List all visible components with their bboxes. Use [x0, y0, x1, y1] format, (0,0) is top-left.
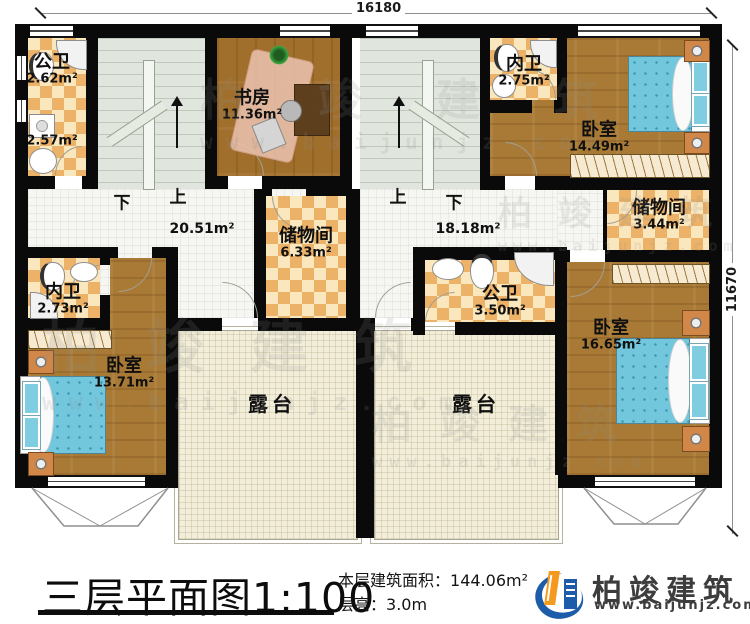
nightstand — [684, 132, 710, 154]
room-area: 2.75m² — [498, 75, 549, 90]
room-area: 3.50m² — [474, 305, 525, 320]
wardrobe — [28, 330, 112, 349]
wall — [82, 176, 98, 189]
wall — [205, 24, 217, 189]
wall — [306, 189, 346, 196]
room-label: 卧室 14.49m² — [569, 121, 629, 156]
nightstand — [28, 452, 54, 476]
pillow — [692, 61, 709, 93]
room-area: 2.57m² — [26, 135, 77, 150]
wall — [455, 322, 567, 335]
pillow — [690, 382, 708, 419]
pillow — [692, 94, 709, 126]
window — [578, 24, 700, 38]
wall — [15, 247, 118, 258]
room-area: 16.65m² — [581, 339, 641, 354]
stair-label-up: 上 — [390, 188, 407, 207]
wall — [557, 24, 567, 100]
wall — [480, 100, 532, 113]
room-label: 20.51m² — [169, 222, 234, 238]
wall — [15, 176, 55, 189]
window — [280, 24, 330, 38]
terrace-left-floor — [178, 330, 358, 540]
pillow — [23, 416, 40, 449]
floor-height-label: 层高： — [338, 595, 386, 614]
wall — [86, 24, 98, 189]
company-logo-icon — [528, 563, 586, 619]
room-name: 公卫 — [474, 285, 525, 305]
room-name: 卧室 — [581, 319, 641, 339]
wall — [356, 330, 374, 538]
stair-arrow-head — [171, 90, 183, 106]
floor-height-line: 层高：3.0m — [338, 591, 427, 615]
wall — [254, 189, 266, 318]
wall — [480, 176, 505, 190]
nightstand — [682, 310, 710, 336]
stair-label-down: 下 — [114, 194, 131, 213]
room-area: 2.73m² — [37, 303, 88, 318]
floor-plan-page: 16180 11670 — [0, 0, 750, 624]
nightstand — [682, 426, 710, 452]
sink-fixture — [70, 262, 98, 282]
wall — [262, 176, 346, 189]
room-name: 卧室 — [569, 121, 629, 141]
stair-label-down: 下 — [446, 194, 463, 213]
room-label: 露台 — [452, 393, 500, 415]
room-area: 2.62m² — [26, 73, 77, 88]
room-name: 卧室 — [94, 357, 154, 377]
room-name: 储物间 — [632, 199, 686, 219]
pillow — [23, 382, 40, 415]
room-label: 公卫 2.62m² — [26, 53, 77, 88]
room-label: 内卫 2.75m² — [498, 55, 549, 90]
wall — [340, 24, 352, 190]
room-area: 11.36m² — [222, 109, 282, 124]
room-area: 14.49m² — [569, 141, 629, 156]
stair-arrow-head — [393, 90, 405, 106]
nightstand — [684, 40, 710, 62]
wardrobe — [570, 154, 710, 178]
wall — [254, 189, 272, 196]
title-underline — [38, 610, 334, 615]
hall-right-stub-floor — [557, 189, 603, 250]
room-label: 储物间 3.44m² — [632, 199, 686, 234]
wall — [217, 176, 228, 189]
wall — [346, 189, 360, 330]
room-name: 内卫 — [498, 55, 549, 75]
plan-title: 三层平面图1:100 — [42, 564, 375, 624]
wall — [557, 250, 570, 262]
room-label: 储物间 6.33m² — [279, 227, 333, 262]
plant — [268, 44, 290, 66]
room-label: 公卫 3.50m² — [474, 285, 525, 320]
window — [30, 24, 73, 38]
room-label: 内卫 2.73m² — [37, 283, 88, 318]
wall — [152, 247, 166, 258]
room-area: 6.33m² — [279, 247, 333, 262]
wall — [535, 176, 722, 190]
room-label: 露台 — [248, 393, 296, 415]
room-label: 2.57m² — [26, 135, 77, 150]
floor-area-label: 本层建筑面积： — [338, 571, 450, 590]
stair-label-up: 上 — [170, 188, 187, 207]
sink-fixture — [29, 148, 57, 174]
wall — [413, 322, 425, 335]
wall — [100, 258, 110, 265]
bay-window — [582, 487, 708, 527]
sink-fixture — [432, 258, 464, 280]
room-area: 13.71m² — [94, 377, 154, 392]
stair-railing — [143, 60, 155, 190]
room-area: 3.44m² — [632, 219, 686, 234]
company-website: www.baijunjz.com — [594, 598, 750, 613]
room-label: 书房 11.36m² — [222, 89, 282, 124]
dimension-width: 16180 — [352, 1, 405, 16]
wall — [28, 318, 110, 330]
wall — [166, 247, 178, 488]
bay-window — [30, 487, 170, 529]
floor-area-line: 本层建筑面积：144.06m² — [338, 567, 528, 591]
wall — [554, 100, 567, 113]
window — [366, 24, 418, 38]
wardrobe — [612, 264, 710, 284]
room-name: 储物间 — [279, 227, 333, 247]
room-label: 18.18m² — [435, 222, 500, 238]
floor-height-value: 3.0m — [386, 595, 427, 614]
room-name: 书房 — [222, 89, 282, 109]
wall — [605, 250, 722, 262]
bed-blanket — [672, 57, 694, 131]
wall — [360, 318, 375, 331]
chair — [280, 100, 302, 122]
nightstand — [28, 350, 54, 374]
room-label: 卧室 13.71m² — [94, 357, 154, 392]
terrace-right-floor — [374, 330, 559, 540]
wall — [166, 318, 222, 331]
wall — [100, 295, 110, 318]
pillow — [690, 344, 708, 381]
bed-blanket — [668, 339, 692, 423]
room-name: 内卫 — [37, 283, 88, 303]
window — [15, 100, 28, 122]
wall — [258, 318, 360, 331]
wall — [555, 247, 567, 475]
room-label: 卧室 16.65m² — [581, 319, 641, 354]
room-name: 公卫 — [26, 53, 77, 73]
floor-area-value: 144.06m² — [450, 571, 528, 590]
dimension-height: 11670 — [725, 263, 740, 316]
